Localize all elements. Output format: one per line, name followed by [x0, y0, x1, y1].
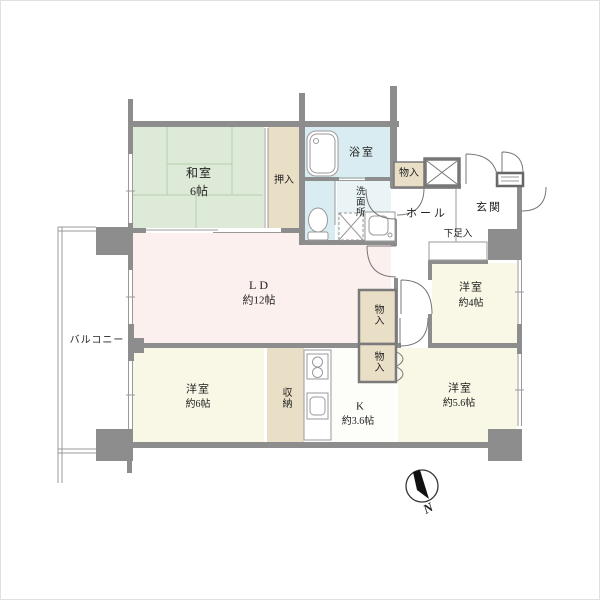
wall-top: [128, 121, 399, 127]
label-living-dining: LD: [249, 279, 271, 291]
wall-washitsu-south-a: [128, 228, 146, 233]
wall-left-a: [128, 127, 133, 154]
yoshitsu56-door-arc: [400, 318, 428, 346]
floor-plan-page: 和室 6帖 押入 浴室 洗面所 物入 ホール 玄関 下足入 洋室 約4帖 LD …: [0, 0, 600, 600]
balcony-railing: [58, 227, 96, 483]
pillar-northeast: [488, 229, 522, 260]
wall-bottom: [128, 442, 522, 448]
toilet-icon: [308, 208, 328, 240]
pillar-southeast: [488, 429, 522, 461]
wall-left-c: [128, 255, 133, 270]
pillar-southwest: [96, 429, 133, 461]
label-shuno: 収納: [280, 387, 290, 409]
label-washitsu: 和室: [186, 167, 212, 179]
entry-door1-arc: [466, 154, 498, 184]
wall-stub-top-left: [128, 99, 133, 123]
label-yoshitsu6: 洋室: [186, 385, 210, 396]
wall-ld-south: [128, 343, 359, 348]
wall-right-a: [517, 184, 522, 230]
label-mono-entry: 物入: [399, 169, 419, 179]
door-sill-icon: [497, 173, 523, 186]
label-mono2: 物入: [372, 351, 382, 373]
label-kitchen: K: [356, 402, 364, 413]
wall-bath-south-b: [365, 177, 391, 181]
wall-yo4-north: [432, 260, 488, 264]
label-living-dining-size: 約12帖: [243, 296, 276, 307]
label-yoshitsu6-size: 約6帖: [186, 400, 211, 410]
wall-yo4-west-a: [428, 260, 432, 280]
wall-yo4-west-b: [428, 314, 432, 343]
kitchen-sink-icon: [307, 393, 328, 419]
label-mono1: 物入: [372, 304, 382, 326]
wall-bath-south-a: [302, 177, 339, 181]
label-oshiire: 押入: [274, 176, 294, 186]
fusuma-line: [265, 128, 268, 228]
label-senmenjo: 洗面所: [353, 186, 363, 218]
label-kitchen-size: 約3.6帖: [342, 417, 375, 427]
compass-icon: [406, 470, 438, 502]
wall-right-b: [517, 324, 522, 354]
label-hall: ホール: [406, 209, 448, 220]
wall-washitsu-south-b: [281, 228, 304, 233]
label-genkan: 玄関: [476, 203, 502, 214]
yoshitsu4-door-arc: [401, 280, 432, 314]
room-yoshitsu56: [398, 348, 517, 442]
floor-plan-drawing: [1, 1, 600, 600]
label-getabako: 下足入: [444, 230, 473, 240]
entry-door2-arc: [502, 152, 523, 173]
label-yoshitsu4: 洋室: [459, 283, 483, 294]
shoe-cabinet: [429, 242, 487, 260]
pillar-northwest: [96, 227, 133, 255]
bathtub-icon: [307, 131, 338, 176]
wall-rooms-divider: [428, 343, 517, 348]
label-bath: 浴室: [349, 148, 375, 159]
label-yoshitsu56-size: 約5.6帖: [443, 399, 476, 409]
wall-stub-bottom-left: [127, 461, 132, 473]
front-door-exterior-arc: [522, 187, 546, 211]
label-washitsu-size: 6帖: [190, 185, 208, 197]
bath-door: [339, 178, 365, 181]
label-yoshitsu4-size: 約4帖: [459, 299, 484, 309]
sliding-door-washitsu: [146, 230, 282, 233]
label-yoshitsu56: 洋室: [448, 384, 472, 395]
wall-bath-west: [299, 93, 305, 245]
stove-icon: [307, 354, 328, 379]
label-balcony: バルコニー: [70, 336, 125, 346]
meter-box-icon: [425, 159, 459, 186]
